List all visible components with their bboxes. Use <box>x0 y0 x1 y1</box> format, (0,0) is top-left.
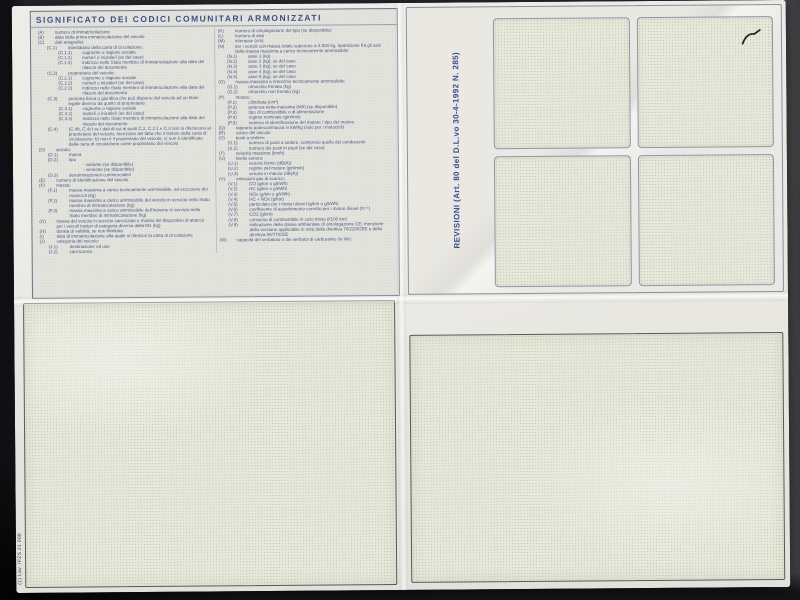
codes-column-right: (K)numero di omologazione del tipo (se d… <box>214 26 395 253</box>
code-id: (C.1.3) <box>58 60 82 70</box>
code-id: (C.2.3) <box>58 86 82 96</box>
revisions-label: REVISIONI (Art. 80 del D.L.vo 30-4-1992 … <box>449 8 465 294</box>
code-id: (F.2) <box>48 198 69 208</box>
code-description: capacità del serbatoio o dei serbatoi di… <box>237 236 392 242</box>
code-line: (V.9)indicazione della classe ambientale… <box>219 221 391 238</box>
code-id: (J.2) <box>49 249 70 254</box>
code-description: indicazione della classe ambientale di o… <box>249 221 391 237</box>
revision-stamp-box <box>494 155 632 287</box>
revisions-panel: REVISIONI (Art. 80 del D.L.vo 30-4-1992 … <box>406 4 784 295</box>
blank-box-bottom-left <box>23 300 397 588</box>
code-description: carrozzeria <box>70 248 213 254</box>
code-id: (F.1) <box>48 188 69 198</box>
codes-column-left: (A)numero di immatricolazione(B)data del… <box>35 27 216 254</box>
photo-background: { "document": { "title": "SIGNIFICATO DE… <box>0 0 800 600</box>
code-description: (C.4b, C.4c) se i dati di cui ai punti C… <box>69 125 212 147</box>
code-id: (V.9) <box>228 222 249 237</box>
code-id: (C.3.3) <box>59 116 83 126</box>
code-line: (C.4)(C.4b, C.4c) se i dati di cui ai pu… <box>39 125 212 147</box>
code-id: (C.4) <box>48 127 69 148</box>
paper-sheet: SIGNIFICATO DEI CODICI COMUNITARI ARMONI… <box>12 0 791 593</box>
code-id: (N) <box>218 44 235 54</box>
revision-stamp-box <box>493 17 631 149</box>
code-line: (W)capacità del serbatoio o dei serbatoi… <box>220 236 392 242</box>
code-id: (G) <box>39 218 56 228</box>
code-id: (W) <box>220 237 237 242</box>
blank-box-bottom-right <box>409 332 785 583</box>
revision-stamp-box <box>637 154 775 286</box>
code-id: (F.3) <box>48 208 69 218</box>
codes-body: (A)numero di immatricolazione(B)data del… <box>35 26 396 296</box>
codes-panel: SIGNIFICATO DEI CODICI COMUNITARI ARMONI… <box>30 8 400 299</box>
print-code: (1) Lav. IPZS 21 008 <box>17 533 23 585</box>
revisions-grid <box>493 16 775 287</box>
code-line: (J.2)carrozzeria <box>40 248 213 254</box>
code-id: (C.3) <box>47 96 68 106</box>
codes-panel-title: SIGNIFICATO DEI CODICI COMUNITARI ARMONI… <box>31 9 397 28</box>
